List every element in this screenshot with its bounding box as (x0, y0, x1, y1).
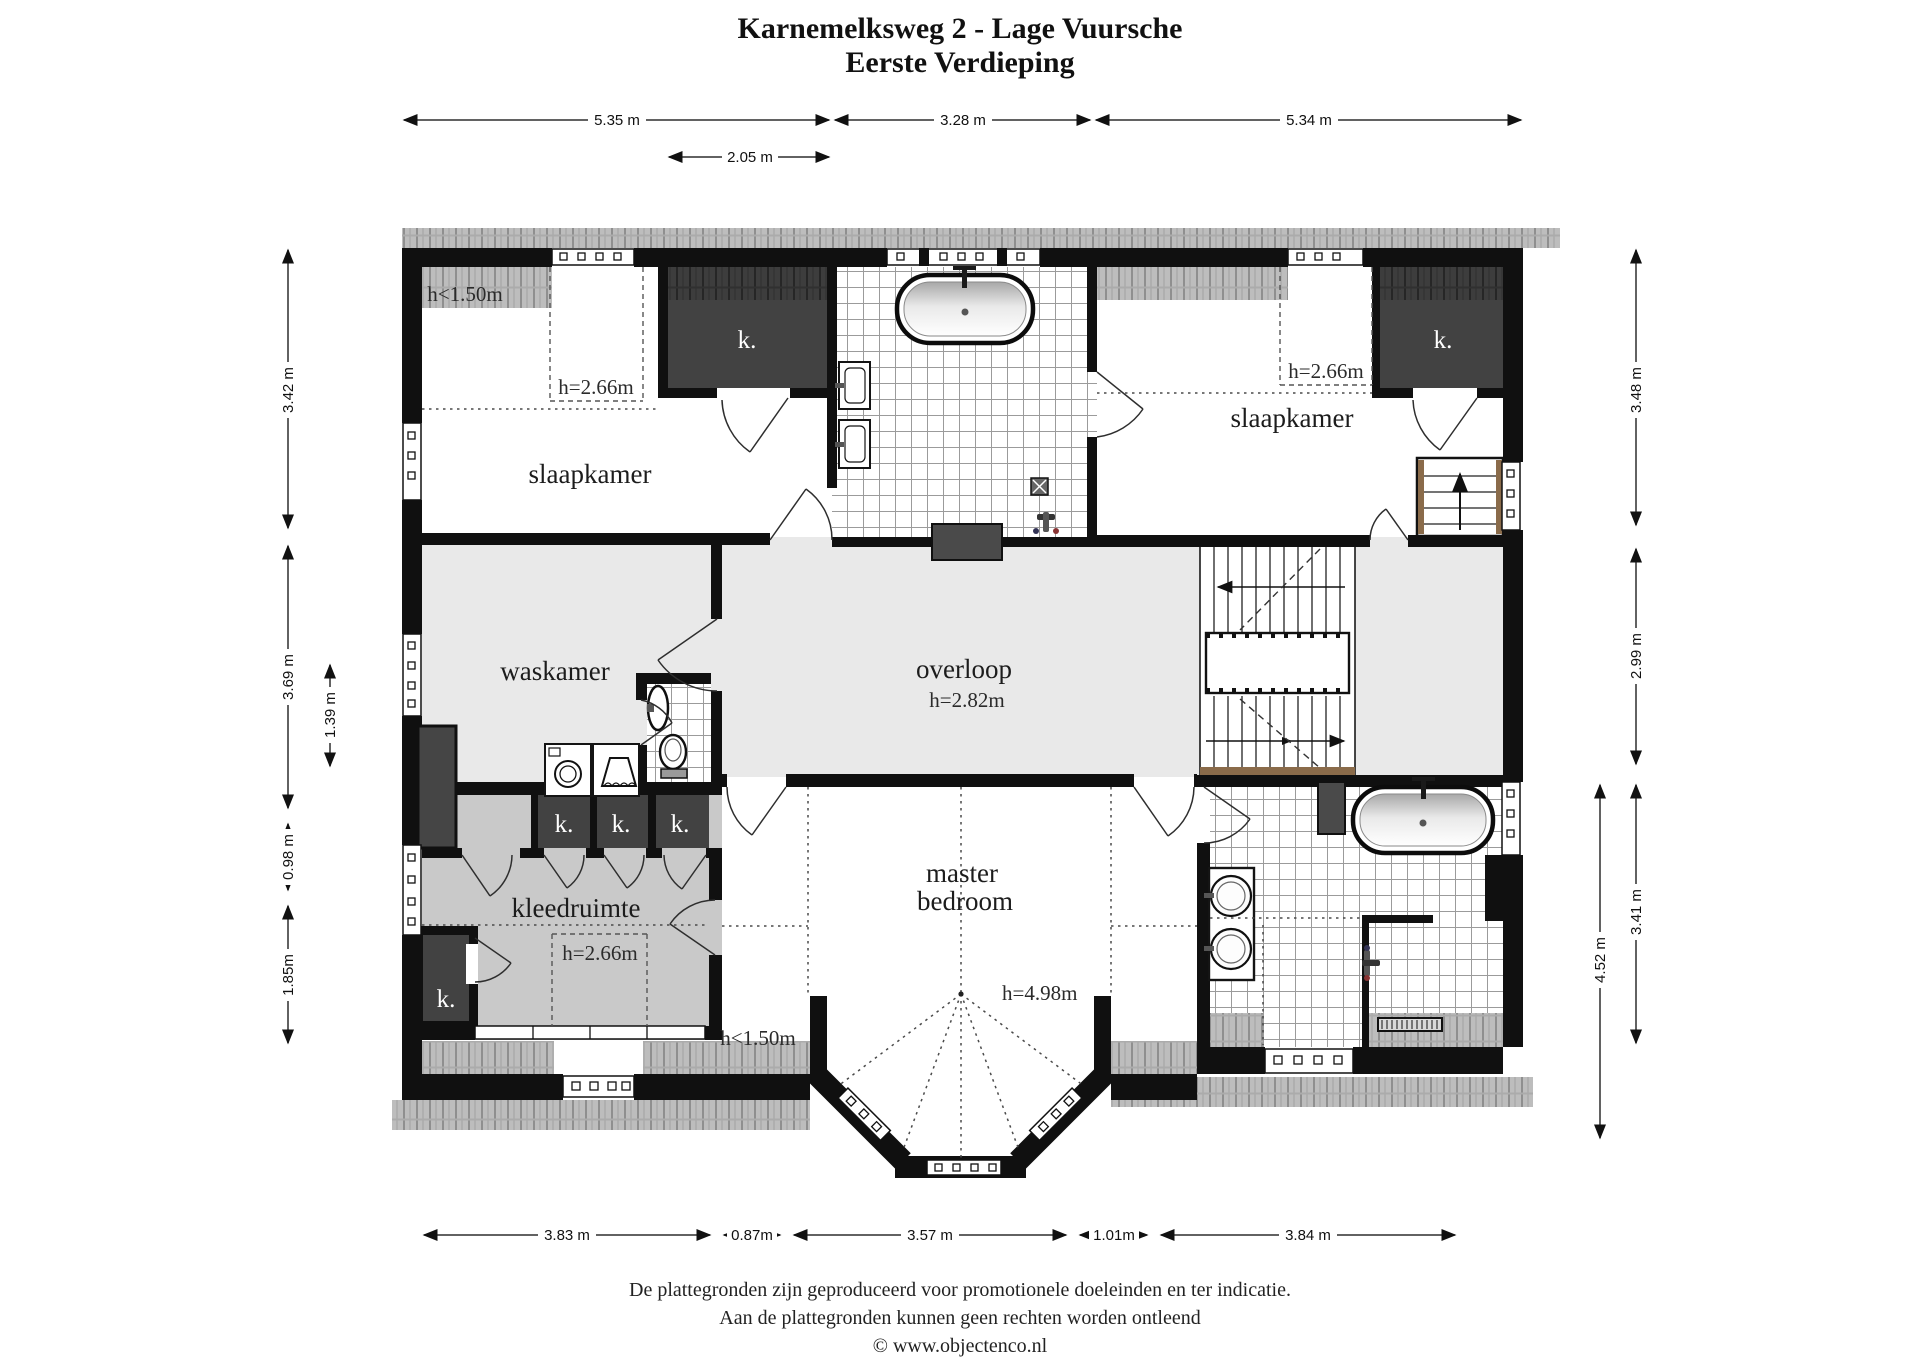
label-h150-bedl: h<1.50m (427, 282, 502, 306)
dim-top-2: 5.34 m (1096, 111, 1521, 129)
label-overloop-height: h=2.82m (929, 688, 1004, 712)
wc-toilet (660, 735, 687, 778)
window-bottom-bathroom (1265, 1049, 1353, 1073)
roof-bedr (1097, 267, 1288, 300)
label-master-2: bedroom (917, 886, 1013, 916)
dim-right-inner: 4.52 m (1591, 785, 1609, 1138)
svg-text:1.39 m: 1.39 m (322, 692, 339, 738)
label-k-row1: k. (555, 811, 574, 838)
wall-pier (1485, 855, 1503, 921)
dim-bottom-1: 0.87m (724, 1226, 780, 1244)
footer-copyright: © www.objectenco.nl (0, 1332, 1920, 1358)
waskamer-cupboard (418, 726, 456, 848)
label-slaapkamer-right: slaapkamer (1231, 403, 1354, 433)
window-right-bathroom (1502, 782, 1520, 855)
label-master-height: h=4.98m (1002, 981, 1077, 1005)
svg-text:3.48 m: 3.48 m (1628, 367, 1645, 413)
roof-bottom-mid (1111, 1041, 1197, 1074)
label-k-row3: k. (671, 811, 690, 838)
radiator-top-bath (932, 524, 1002, 560)
label-k-bottom: k. (437, 986, 456, 1013)
dim-right-1: 2.99 m (1627, 549, 1645, 764)
label-waskamer: waskamer (500, 656, 609, 686)
dim-top-1: 3.28 m (835, 111, 1090, 129)
washing-machine-icon (545, 744, 591, 796)
dim-right-0: 3.48 m (1627, 250, 1645, 525)
sink-top-2 (835, 420, 870, 468)
main-staircase (1200, 546, 1355, 775)
label-h266-bedl: h=2.66m (558, 375, 633, 399)
dim-bottom-3: 1.01m (1080, 1226, 1147, 1244)
svg-text:4.52 m: 4.52 m (1592, 937, 1609, 983)
window-kleedruimte-sill (475, 1026, 705, 1039)
label-overloop: overloop (916, 654, 1012, 684)
dim-left-1: 3.69 m (279, 546, 297, 808)
title-line1: Karnemelksweg 2 - Lage Vuursche (0, 12, 1920, 46)
title-line2: Eerste Verdieping (0, 46, 1920, 80)
label-h150-master: h<1.50m (720, 1026, 795, 1050)
dim-left-0: 3.42 m (279, 250, 297, 528)
svg-text:5.34 m: 5.34 m (1286, 112, 1332, 129)
closet-bottom-left (414, 926, 478, 1030)
bathtub-top (897, 266, 1033, 343)
attic-staircase (1417, 458, 1503, 536)
radiator-master-bath (1318, 782, 1345, 834)
svg-text:0.87m: 0.87m (731, 1227, 773, 1244)
vanity-master (1204, 868, 1254, 980)
label-kleedruimte: kleedruimte (512, 893, 641, 923)
roof-strip-top (402, 228, 1560, 248)
svg-text:2.05 m: 2.05 m (727, 149, 773, 166)
wc-sink (647, 686, 668, 730)
sink-top-1 (835, 362, 870, 409)
label-k-row2: k. (612, 811, 631, 838)
svg-text:3.28 m: 3.28 m (940, 112, 986, 129)
shower-drain-icon (1378, 1018, 1442, 1031)
label-h266-kleed: h=2.66m (562, 941, 637, 965)
window-left-kleedruimte (403, 845, 421, 935)
footer-line2: Aan de plattegronden kunnen geen rechten… (0, 1304, 1920, 1332)
roof-bottom-left1 (402, 1041, 554, 1074)
dim-top-0: 5.35 m (404, 111, 829, 129)
window-right-stair (1502, 462, 1520, 530)
svg-text:1.01m: 1.01m (1093, 1227, 1135, 1244)
dormer-window-top-center (887, 248, 1040, 266)
svg-text:3.84 m: 3.84 m (1285, 1227, 1331, 1244)
floorplan-svg: slaapkamer slaapkamer waskamer overloop … (0, 0, 1920, 1358)
dim-bottom-2: 3.57 m (794, 1226, 1066, 1244)
stair-well (1206, 633, 1349, 693)
dim-bottom-0: 3.83 m (424, 1226, 710, 1244)
footer-line1: De plattegronden zijn geproduceerd voor … (0, 1276, 1920, 1304)
dim-top-inner: 2.05 m (669, 148, 829, 166)
dim-left-3: 1.85m (279, 906, 297, 1043)
label-h266-bedr: h=2.66m (1288, 359, 1363, 383)
floor-overloop (711, 537, 1503, 777)
dim-left-2: 0.98 m (279, 824, 297, 890)
dormer-window-top-right (1288, 249, 1363, 265)
window-left-waskamer (403, 634, 421, 716)
svg-text:0.98 m: 0.98 m (280, 834, 297, 880)
svg-text:3.41 m: 3.41 m (1628, 889, 1645, 935)
roof-eave-left (392, 1100, 810, 1130)
svg-text:5.35 m: 5.35 m (594, 112, 640, 129)
label-master-1: master (926, 858, 998, 888)
page-title: Karnemelksweg 2 - Lage Vuursche Eerste V… (0, 12, 1920, 80)
label-k-bedl: k. (738, 327, 757, 354)
vent-fan-icon (1031, 478, 1048, 495)
svg-text:1.85m: 1.85m (280, 954, 297, 996)
dim-bottom-4: 3.84 m (1161, 1226, 1455, 1244)
svg-text:3.83 m: 3.83 m (544, 1227, 590, 1244)
floorplan-page: Karnemelksweg 2 - Lage Vuursche Eerste V… (0, 0, 1920, 1358)
dim-right-2: 3.41 m (1627, 785, 1645, 1043)
svg-text:3.69 m: 3.69 m (280, 654, 297, 700)
bathtub-master (1353, 777, 1493, 853)
window-bottom-dormer (563, 1076, 634, 1097)
label-k-bedr: k. (1434, 327, 1453, 354)
dryer-icon (593, 744, 639, 796)
dim-left-inner: 1.39 m (321, 665, 339, 766)
footer-disclaimer: De plattegronden zijn geproduceerd voor … (0, 1276, 1920, 1358)
svg-text:2.99 m: 2.99 m (1628, 633, 1645, 679)
svg-text:3.42 m: 3.42 m (280, 367, 297, 413)
bay-window-bottom (927, 1160, 1001, 1175)
window-left-bedroom (403, 423, 421, 500)
label-slaapkamer-left: slaapkamer (529, 459, 652, 489)
svg-text:3.57 m: 3.57 m (907, 1227, 953, 1244)
dormer-window-top-left (552, 249, 634, 265)
